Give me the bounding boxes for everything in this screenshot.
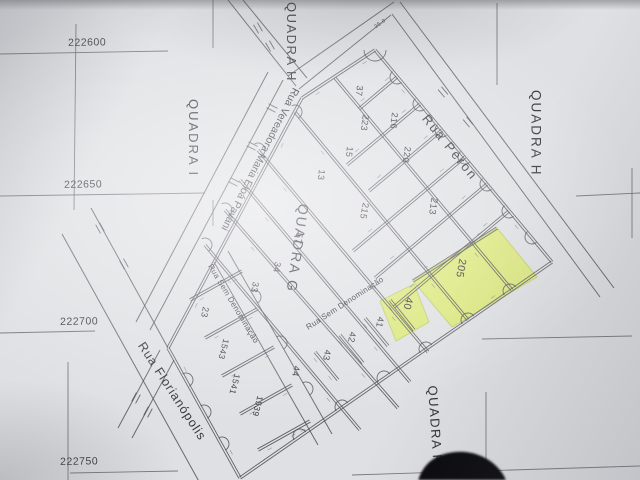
photographed-plat-map: 222600222650222700222750QUADRA IQUADRA H… [0, 0, 640, 480]
photographer-silhouette [0, 0, 640, 480]
